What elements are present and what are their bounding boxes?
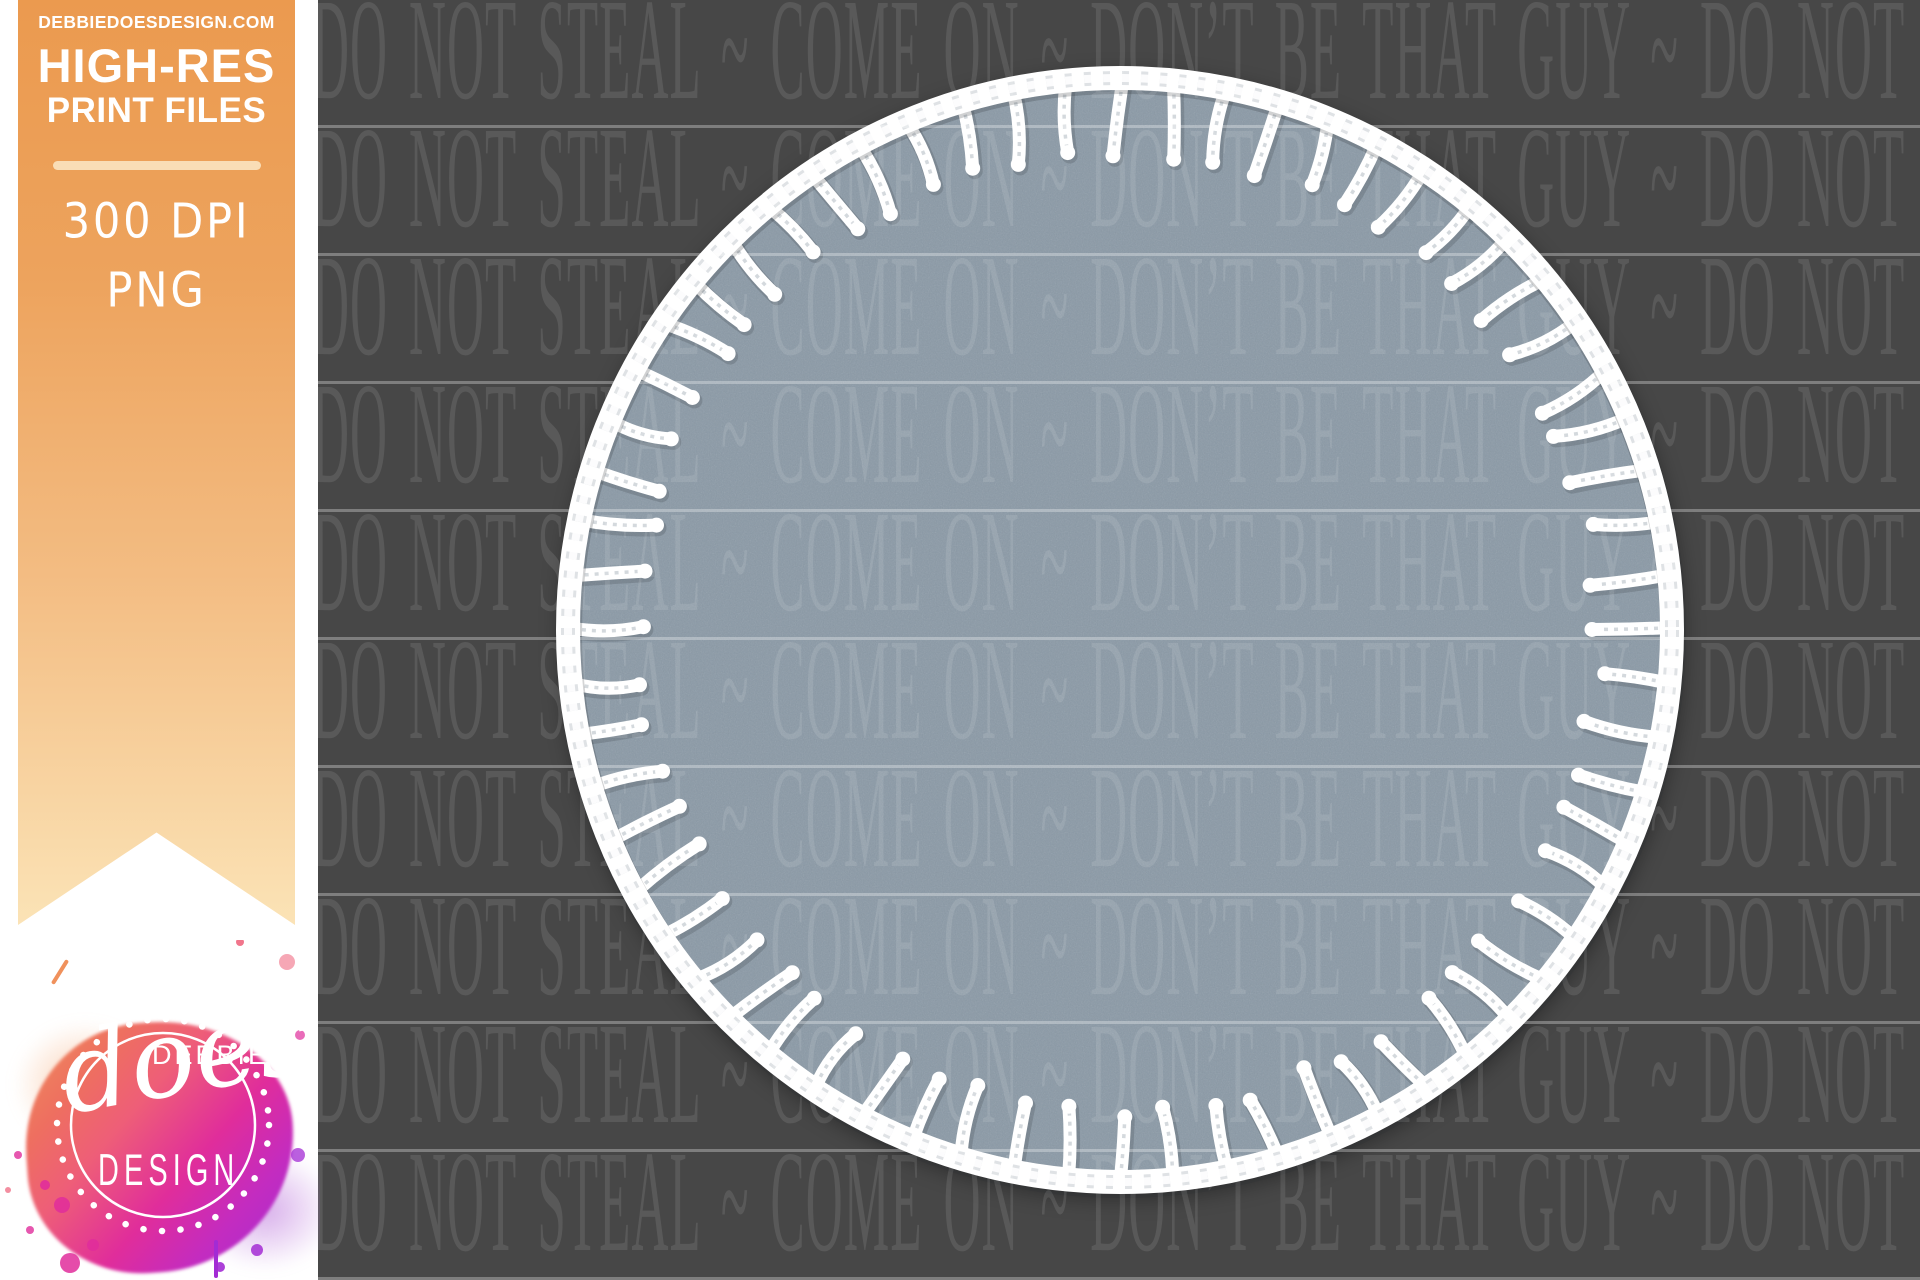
banner-spec-dpi: 300 DPI xyxy=(29,193,284,249)
banner: DEBBIEDOESDESIGN.COM HIGH-RES PRINT FILE… xyxy=(18,0,295,925)
watermark-background: DO NOT STEAL ~ COME ON ~ DON’T BE THAT G… xyxy=(318,0,1920,1280)
banner-spec-format: PNG xyxy=(29,262,284,318)
felt-circle-patch xyxy=(520,30,1720,1230)
product-mockup-stage: DO NOT STEAL ~ COME ON ~ DON’T BE THAT G… xyxy=(0,0,1920,1280)
logo-text-design: DESIGN xyxy=(98,1146,239,1197)
banner-headline: HIGH-RES xyxy=(18,38,295,93)
brand-logo: DEBBIE does DESIGN xyxy=(0,940,320,1280)
banner-subheadline: PRINT FILES xyxy=(18,91,295,131)
banner-divider xyxy=(53,161,261,170)
banner-website: DEBBIEDOESDESIGN.COM xyxy=(18,0,295,33)
